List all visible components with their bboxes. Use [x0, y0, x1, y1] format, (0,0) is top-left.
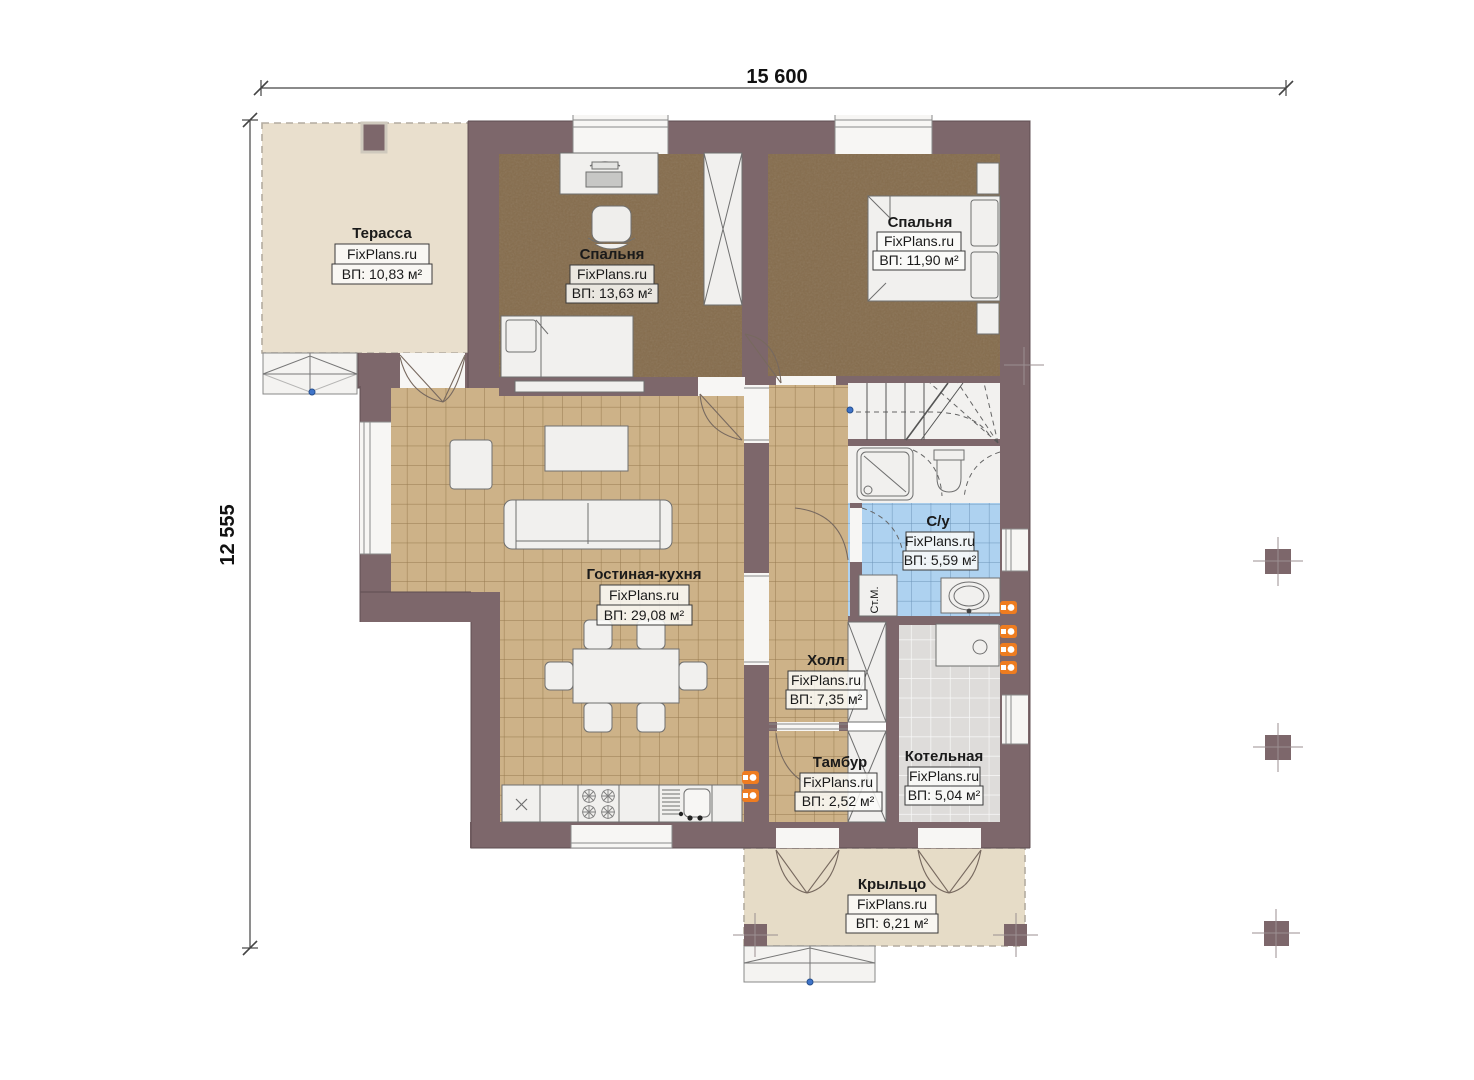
svg-text:FixPlans.ru: FixPlans.ru: [857, 896, 927, 912]
svg-text:Терасса: Терасса: [352, 225, 412, 242]
svg-text:Спальня: Спальня: [888, 214, 953, 231]
svg-text:ВП: 13,63 м²: ВП: 13,63 м²: [572, 285, 653, 301]
svg-text:FixPlans.ru: FixPlans.ru: [791, 672, 861, 688]
svg-text:FixPlans.ru: FixPlans.ru: [909, 768, 979, 784]
svg-text:Ст.М.: Ст.М.: [869, 586, 881, 613]
svg-text:ВП: 7,35 м²: ВП: 7,35 м²: [790, 691, 863, 707]
svg-text:FixPlans.ru: FixPlans.ru: [577, 266, 647, 282]
svg-text:С/у: С/у: [926, 513, 950, 530]
svg-text:Котельная: Котельная: [905, 748, 984, 765]
svg-text:FixPlans.ru: FixPlans.ru: [905, 533, 975, 549]
svg-text:Гостиная-кухня: Гостиная-кухня: [587, 566, 702, 583]
svg-text:15 600: 15 600: [746, 66, 807, 88]
svg-text:Спальня: Спальня: [580, 246, 645, 263]
svg-text:ВП: 6,21 м²: ВП: 6,21 м²: [856, 915, 929, 931]
svg-text:FixPlans.ru: FixPlans.ru: [884, 233, 954, 249]
svg-text:ВП: 29,08 м²: ВП: 29,08 м²: [604, 607, 685, 623]
svg-text:Тамбур: Тамбур: [813, 754, 867, 771]
svg-text:Холл: Холл: [807, 652, 845, 669]
svg-text:FixPlans.ru: FixPlans.ru: [347, 246, 417, 262]
svg-text:ВП: 11,90 м²: ВП: 11,90 м²: [879, 252, 959, 268]
svg-text:ВП: 5,04 м²: ВП: 5,04 м²: [908, 787, 981, 803]
svg-text:Крыльцо: Крыльцо: [858, 876, 926, 893]
svg-text:FixPlans.ru: FixPlans.ru: [803, 774, 873, 790]
svg-text:ВП: 5,59 м²: ВП: 5,59 м²: [904, 552, 977, 568]
svg-text:12 555: 12 555: [217, 504, 239, 565]
svg-text:FixPlans.ru: FixPlans.ru: [609, 587, 679, 603]
svg-text:ВП: 10,83 м²: ВП: 10,83 м²: [342, 266, 423, 282]
svg-text:ВП: 2,52 м²: ВП: 2,52 м²: [802, 793, 875, 809]
